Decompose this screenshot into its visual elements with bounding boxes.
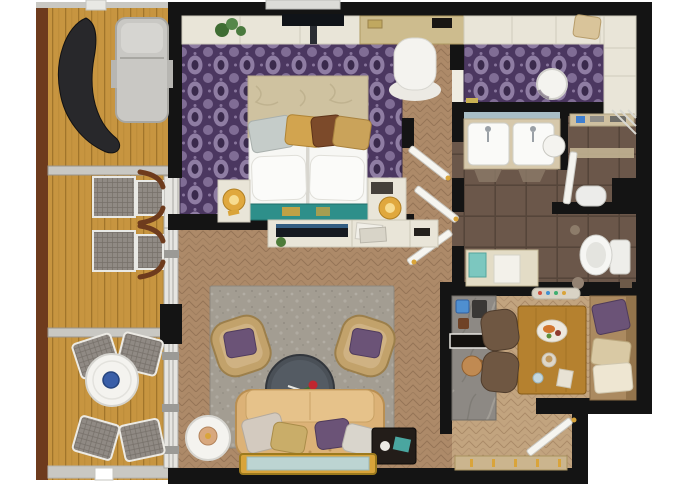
deck-chair-back <box>93 231 135 271</box>
window-mullion-2 <box>162 352 179 360</box>
nightstand-left <box>218 180 250 222</box>
wall-top <box>168 2 652 16</box>
closet-threshold <box>466 98 478 103</box>
plant-icon <box>226 18 238 30</box>
tv-mount <box>310 26 317 44</box>
window-living <box>164 228 178 468</box>
door-handle <box>454 217 459 222</box>
bidet <box>576 186 606 206</box>
bed-runner <box>248 204 368 220</box>
glass-dot <box>562 291 566 295</box>
wall-living-kitchen <box>440 282 452 434</box>
banquette-pillow-purple <box>591 299 630 335</box>
toiletry-gray <box>590 116 604 122</box>
desk-item <box>368 20 382 28</box>
lamp-finial <box>205 433 211 439</box>
napkin <box>557 369 574 388</box>
wall-bath-left-a <box>452 102 464 142</box>
sofa <box>236 390 384 458</box>
wardrobe-right <box>604 16 636 116</box>
banquette-pillow-cream <box>593 362 633 393</box>
wall-bedroom-right-stub <box>402 118 414 148</box>
pouf <box>537 69 567 99</box>
remote <box>414 228 430 236</box>
food <box>555 330 561 336</box>
deck-chair-seat <box>137 181 163 215</box>
dressing-carpet <box>464 44 604 106</box>
toilet-seat <box>586 242 606 268</box>
tv-screen <box>282 14 344 26</box>
banquette <box>590 296 636 400</box>
tray <box>371 182 393 194</box>
sideboard <box>268 220 438 247</box>
white-towel <box>494 255 520 283</box>
curtain-box <box>266 0 340 9</box>
window-mullion-3 <box>162 404 179 412</box>
glass-dot <box>538 291 542 295</box>
door-handle <box>412 260 417 265</box>
runner-motif <box>316 207 330 216</box>
floor-plan-stage <box>0 0 680 491</box>
deco-pillow <box>332 116 372 151</box>
dining-chair <box>479 308 520 353</box>
mat-tick <box>492 459 495 467</box>
dining-chair <box>480 350 520 394</box>
patio-chair-body <box>119 418 166 462</box>
rose <box>309 381 318 390</box>
white-pillow <box>251 155 307 201</box>
deck-chair-back <box>93 177 135 217</box>
toilet-tank <box>610 240 630 274</box>
runner-motif <box>282 207 300 216</box>
window-mullion-1 <box>162 250 179 258</box>
door-handle <box>572 418 577 423</box>
door-handle <box>446 176 451 181</box>
nightstand-right <box>368 178 406 222</box>
wall-bath-left-b <box>452 178 464 212</box>
wc-item <box>572 277 584 289</box>
glass <box>533 373 543 383</box>
round-bowl <box>543 135 565 157</box>
armchair-pillow <box>349 328 383 359</box>
kitchen-top-shelf <box>532 288 580 299</box>
bath-bench <box>466 250 538 286</box>
chair-shell <box>394 38 436 90</box>
bench-gold <box>240 454 376 474</box>
white-pillow <box>309 155 365 201</box>
glass-dot <box>546 291 550 295</box>
mat-tick <box>470 459 473 467</box>
mat-tick <box>536 459 539 467</box>
armchair-pillow <box>223 328 257 359</box>
wc-item <box>620 280 632 288</box>
side-table-dark <box>372 428 416 464</box>
blue-bowl <box>103 372 119 388</box>
magazine <box>360 227 387 243</box>
toilet <box>580 235 630 275</box>
sun-lounger-arm-right <box>167 60 173 88</box>
side-table-round <box>186 416 230 460</box>
tv-sheen <box>276 224 348 228</box>
food <box>547 334 552 339</box>
patio-table <box>86 354 138 406</box>
bread <box>546 356 553 363</box>
toiletry-blue <box>576 116 585 123</box>
dressing-chair <box>573 14 602 39</box>
sun-lounger-arm-left <box>111 60 117 88</box>
faucet-icon <box>485 126 491 132</box>
table-top <box>518 306 586 394</box>
plant-icon <box>236 26 246 36</box>
plant-icon <box>276 237 286 247</box>
wall-wc-notch <box>612 178 652 212</box>
lamp-glow <box>385 203 395 213</box>
mat-tick <box>558 459 561 467</box>
glass-dot <box>554 291 558 295</box>
bench-top <box>247 457 369 470</box>
sill-box <box>95 468 113 480</box>
sun-lounger-headrest <box>121 23 163 53</box>
blue-cup <box>456 300 469 313</box>
teal-towel <box>469 253 486 277</box>
shower-bench <box>570 148 634 158</box>
desk-item <box>432 18 452 28</box>
mat-tick <box>514 459 517 467</box>
bed <box>248 76 372 220</box>
lamp-glow <box>229 195 239 205</box>
wall-living-left-stub <box>160 304 182 344</box>
deck-rail <box>36 6 48 480</box>
copper-kettle <box>462 356 482 376</box>
wall-bedroom-left <box>168 2 182 178</box>
floor-plan-image <box>0 0 680 491</box>
deck-chair-seat <box>137 235 163 269</box>
sun-lounger <box>111 18 173 122</box>
wall-fixture-deck <box>86 0 106 10</box>
sofa-pillow-gold <box>270 421 308 454</box>
runner-band <box>248 204 368 220</box>
dining-table <box>518 306 586 394</box>
jar <box>458 318 469 329</box>
faucet-icon <box>530 126 536 132</box>
mirror-strip <box>464 112 560 119</box>
vase <box>380 441 390 451</box>
desk-chair <box>389 38 441 101</box>
food <box>543 325 555 333</box>
wc-item <box>570 225 580 235</box>
patio-chair-4 <box>119 418 166 462</box>
